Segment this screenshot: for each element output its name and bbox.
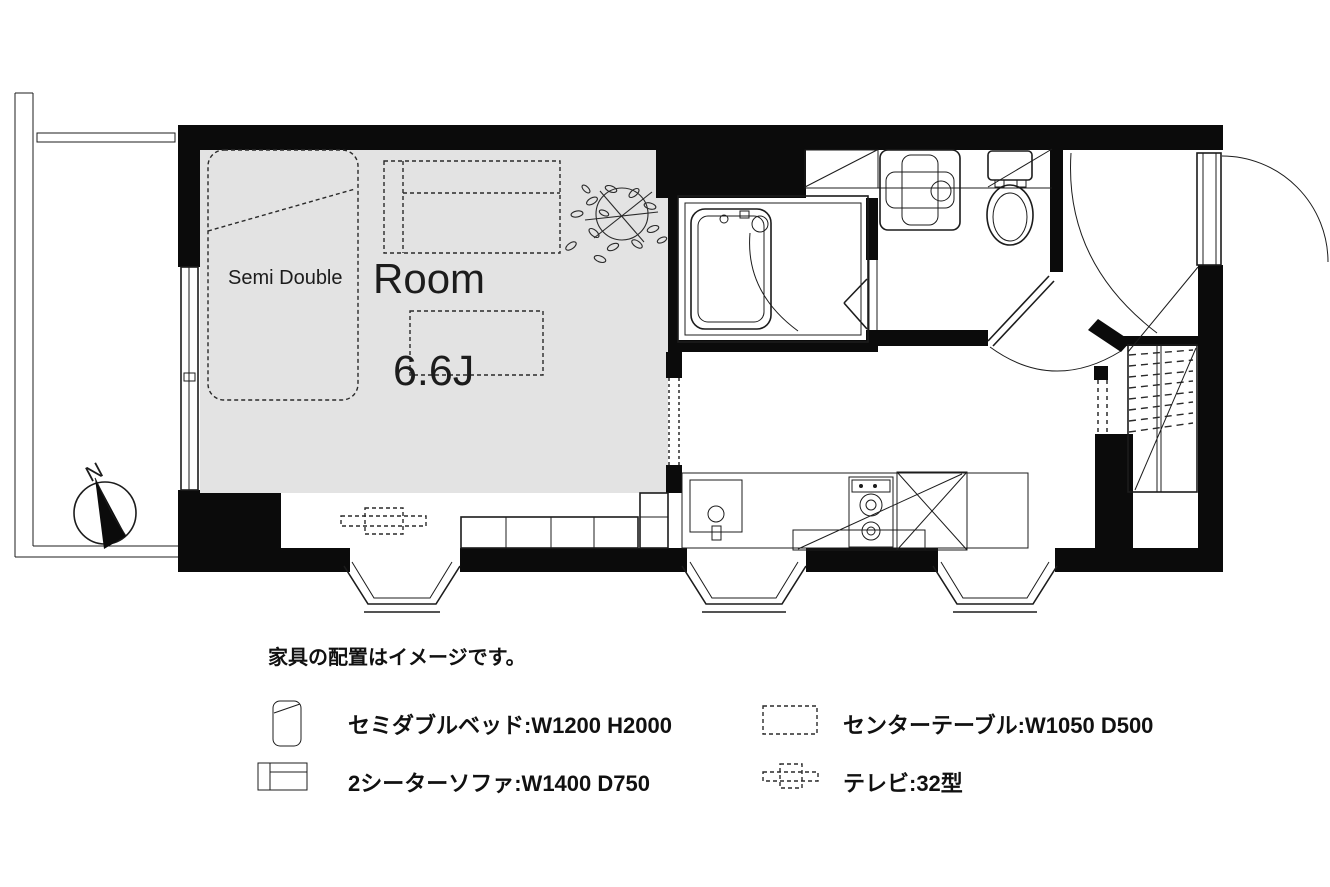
refrigerator-space [897,472,967,550]
tv-icon [763,764,818,788]
legend-table-label: センターテーブル:W1050 D500 [843,713,1153,738]
bay-window-right [933,562,1057,612]
bay-window-middle [682,562,806,612]
inner-door-swing [1071,153,1157,333]
bed-icon [273,701,301,746]
floor-plan-image: Semi Double [0,0,1330,887]
cabinet-row [461,493,668,548]
front-door-swing [1222,156,1328,262]
bathtub [691,209,771,329]
legend-bed-label: セミダブルベッド:W1200 H2000 [348,713,672,738]
kitchen [682,472,1028,550]
bed-label: Semi Double [228,267,343,289]
kitchen-sink [690,480,742,540]
legend-row-sofa: 2シーターソファ:W1400 D750 [258,763,650,796]
balcony-partition [37,133,175,142]
stove [849,477,893,547]
room-opening [669,378,679,465]
toilet [987,151,1033,245]
front-door [1197,153,1328,265]
tv [341,508,426,534]
washing-machine [880,150,960,230]
furniture-legend: 家具の配置はイメージです。 セミダブルベッド:W1200 H2000 センターテ… [258,645,1153,796]
bath-fixture [740,211,749,218]
legend-row-center-table: センターテーブル:W1050 D500 [763,706,1153,738]
main-room-floor [200,150,668,493]
legend-row-tv: テレビ:32型 [763,764,963,796]
legend-tv-label: テレビ:32型 [843,771,963,796]
room-size-label: 6.6J [393,347,474,395]
bathroom [678,196,877,342]
legend-sofa-label: 2シーターソファ:W1400 D750 [348,771,650,796]
room-label: Room [373,255,485,302]
legend-note: 家具の配置はイメージです。 [268,645,526,669]
floor-plan-page: Semi Double [0,0,1330,887]
kitchen-counter [682,473,1028,548]
bay-window-left [344,562,460,612]
center-table-icon [763,706,817,734]
room-window [181,267,198,490]
legend-row-bed: セミダブルベッド:W1200 H2000 [273,701,672,746]
compass: N [74,457,136,549]
sofa-icon [258,763,307,790]
shower-hose [750,233,798,331]
